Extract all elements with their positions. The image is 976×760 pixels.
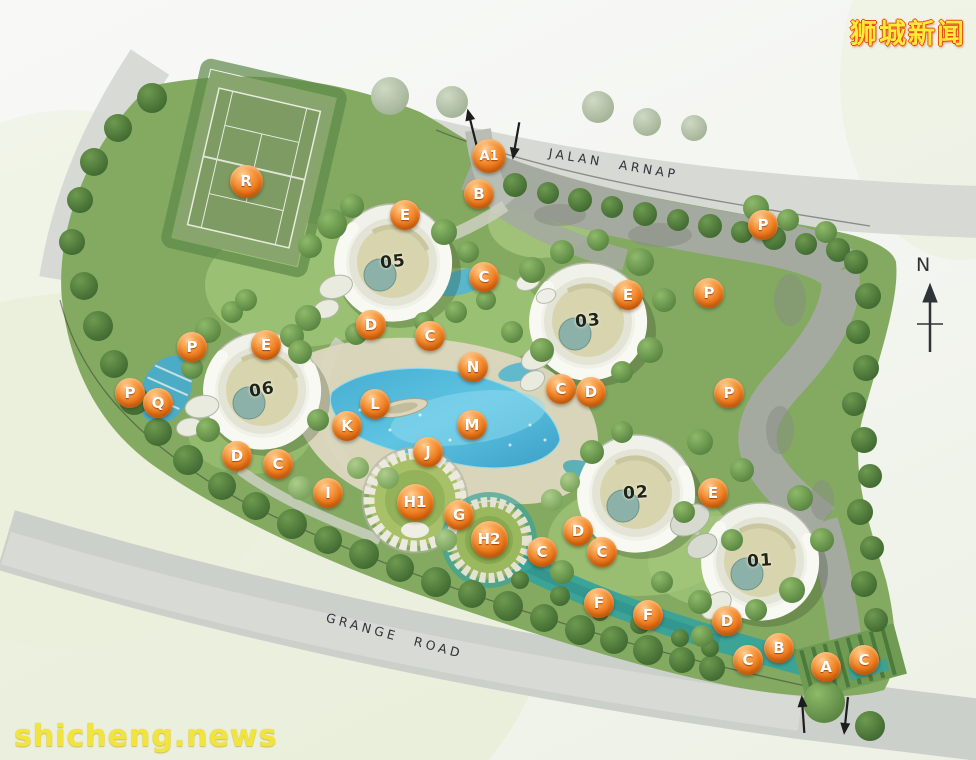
marker-c: C <box>587 537 617 567</box>
building-label-01: 01 <box>746 550 773 572</box>
marker-p: P <box>748 210 778 240</box>
marker-a1: A1 <box>472 139 506 173</box>
marker-k: K <box>332 411 362 441</box>
marker-f: F <box>584 588 614 618</box>
marker-l: L <box>360 389 390 419</box>
marker-c: C <box>849 645 879 675</box>
marker-e: E <box>390 200 420 230</box>
marker-m: M <box>457 410 487 440</box>
building-label-02: 02 <box>622 482 649 504</box>
marker-b: B <box>464 179 494 209</box>
marker-d: D <box>712 606 742 636</box>
marker-p: P <box>115 378 145 408</box>
marker-h2: H2 <box>471 521 508 558</box>
marker-f: F <box>633 600 663 630</box>
marker-q: Q <box>143 388 173 418</box>
building-label-05: 05 <box>379 251 407 274</box>
marker-c: C <box>415 321 445 351</box>
marker-b: B <box>764 633 794 663</box>
marker-e: E <box>613 280 643 310</box>
marker-e: E <box>698 478 728 508</box>
marker-c: C <box>527 537 557 567</box>
up-arrow-icon <box>794 692 813 735</box>
marker-i: I <box>313 478 343 508</box>
marker-n: N <box>458 352 488 382</box>
marker-d: D <box>222 441 252 471</box>
marker-h1: H1 <box>397 484 434 521</box>
watermark-site-url: shicheng.news <box>14 719 278 754</box>
building-label-03: 03 <box>574 310 601 332</box>
marker-d: D <box>576 377 606 407</box>
site-plan-image: JALAN ARNAP GRANGE ROAD N 0503060201 RA1… <box>0 0 976 760</box>
marker-j: J <box>413 437 443 467</box>
marker-a: A <box>811 652 841 682</box>
site-plan-illustration <box>0 0 976 760</box>
marker-r: R <box>230 165 263 198</box>
marker-p: P <box>714 378 744 408</box>
watermark-site-name: 狮城新闻 <box>850 12 966 51</box>
marker-p: P <box>177 332 207 362</box>
marker-d: D <box>563 516 593 546</box>
marker-c: C <box>733 645 763 675</box>
marker-c: C <box>263 449 293 479</box>
marker-p: P <box>694 278 724 308</box>
marker-e: E <box>251 330 281 360</box>
marker-c: C <box>546 374 576 404</box>
marker-c: C <box>469 262 499 292</box>
marker-g: G <box>444 500 474 530</box>
marker-d: D <box>356 310 386 340</box>
compass-north: N <box>916 254 931 276</box>
compass-north-label: N <box>916 254 931 276</box>
north-arrow-icon <box>917 284 943 352</box>
